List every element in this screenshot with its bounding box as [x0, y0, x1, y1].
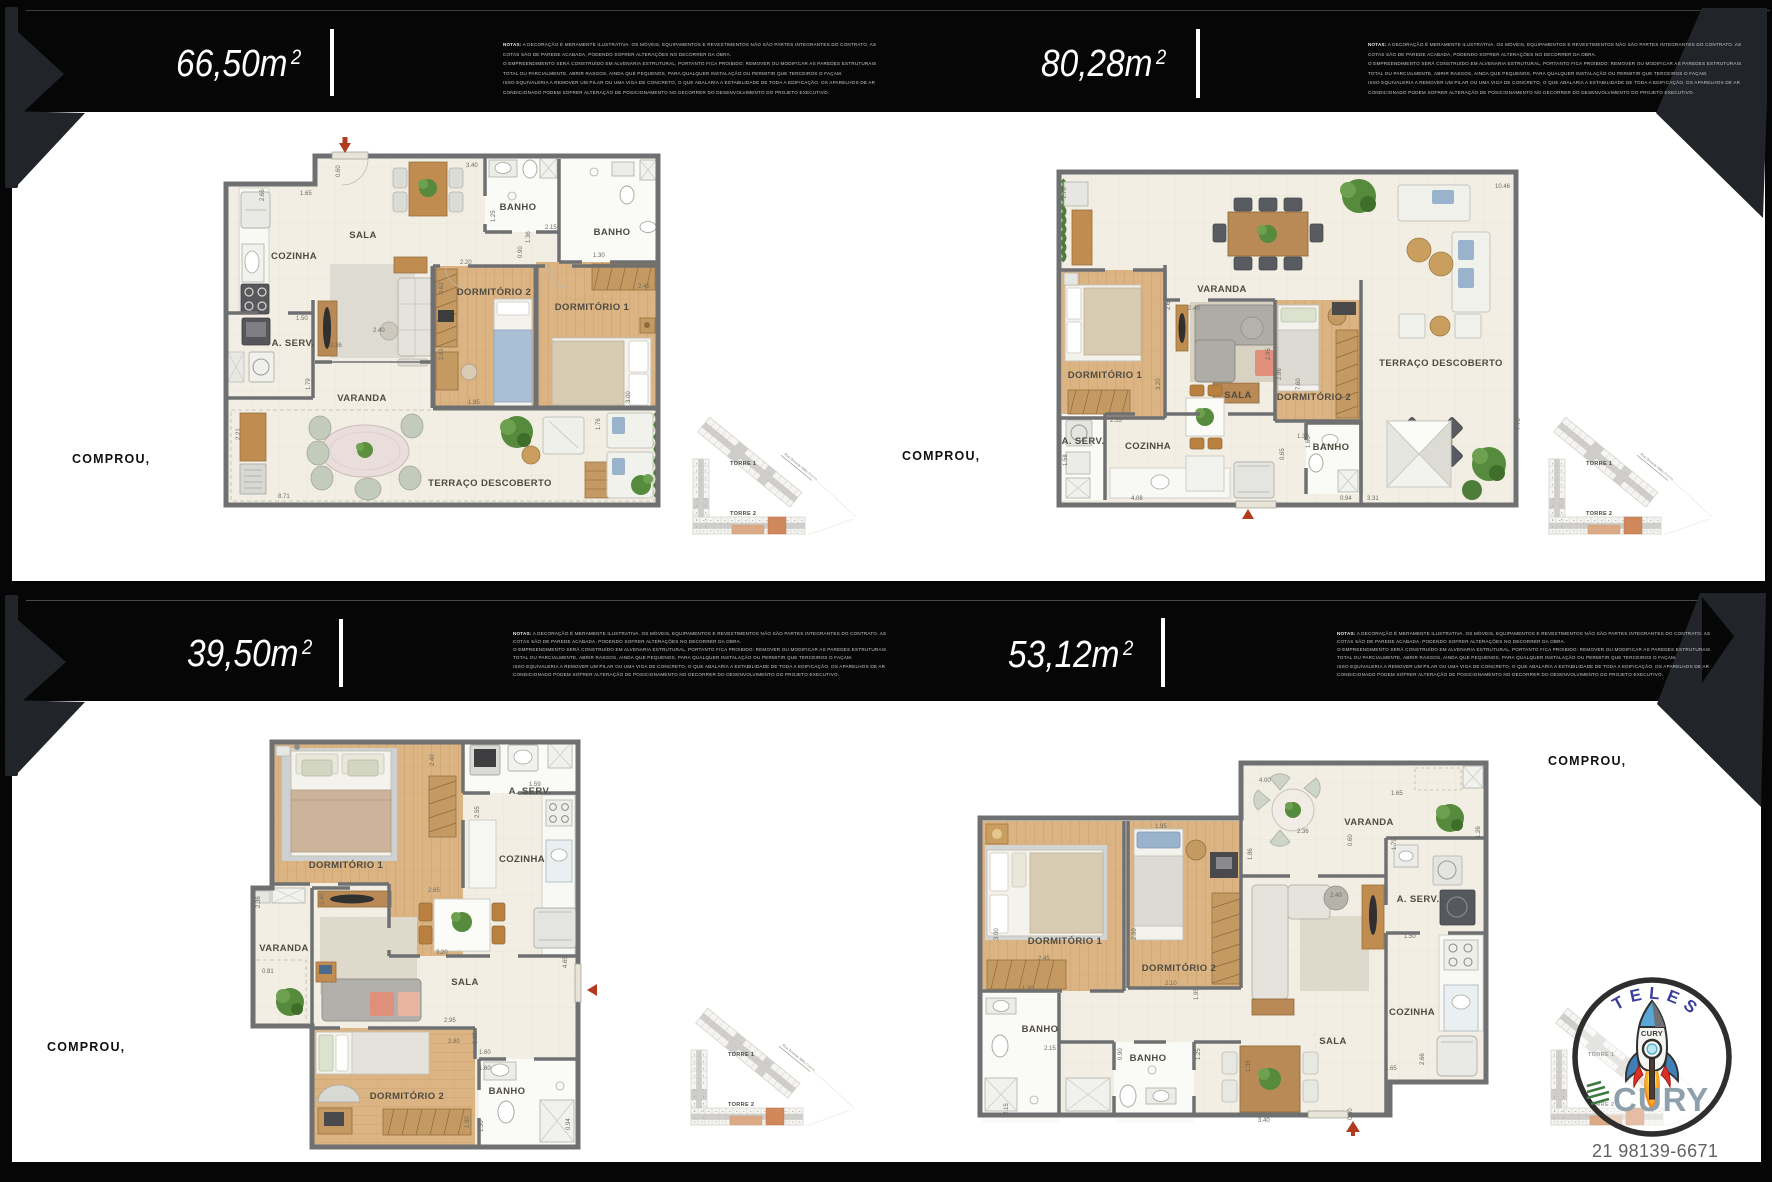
svg-text:2.45: 2.45 [1038, 956, 1050, 962]
svg-text:1.30: 1.30 [1022, 986, 1034, 992]
svg-text:0.60: 0.60 [336, 165, 342, 177]
svg-text:1.60: 1.60 [479, 1066, 491, 1072]
svg-text:2.80: 2.80 [448, 1039, 460, 1045]
svg-text:1.76: 1.76 [596, 418, 602, 430]
svg-text:2.40: 2.40 [1330, 893, 1342, 899]
svg-text:1.50: 1.50 [1404, 934, 1416, 940]
svg-text:0.65: 0.65 [473, 1032, 479, 1044]
svg-text:2.15: 2.15 [1044, 1046, 1056, 1052]
svg-text:2.86: 2.86 [1277, 368, 1283, 380]
svg-text:1.79: 1.79 [306, 378, 312, 390]
svg-text:1.65: 1.65 [300, 191, 312, 197]
svg-text:0.81: 0.81 [262, 969, 274, 975]
svg-text:DORMITÓRIO 2: DORMITÓRIO 2 [457, 286, 531, 298]
svg-text:DORMITÓRIO 1: DORMITÓRIO 1 [309, 859, 384, 871]
svg-text:COZINHA: COZINHA [1389, 1007, 1435, 1018]
svg-text:DORMITÓRIO 2: DORMITÓRIO 2 [1277, 391, 1351, 403]
svg-text:DORMITÓRIO 1: DORMITÓRIO 1 [1028, 935, 1103, 947]
svg-text:2.15: 2.15 [545, 225, 557, 231]
svg-text:1.30: 1.30 [479, 1120, 485, 1132]
svg-text:4.08: 4.08 [1131, 496, 1143, 502]
svg-text:3.40: 3.40 [1258, 1118, 1270, 1124]
svg-text:0.90: 0.90 [1118, 1048, 1124, 1060]
svg-text:1.25: 1.25 [491, 210, 497, 222]
svg-text:COZINHA: COZINHA [271, 251, 317, 262]
svg-text:SALA: SALA [1224, 390, 1251, 401]
svg-text:BANHO: BANHO [500, 202, 537, 213]
svg-text:0.90: 0.90 [518, 246, 524, 258]
svg-text:1.36: 1.36 [526, 231, 532, 243]
svg-text:TERRAÇO DESCOBERTO: TERRAÇO DESCOBERTO [428, 478, 552, 489]
svg-text:1.95: 1.95 [468, 400, 480, 406]
svg-text:BANHO: BANHO [1130, 1053, 1167, 1064]
svg-text:2.95: 2.95 [1266, 348, 1272, 360]
svg-text:BANHO: BANHO [1022, 1024, 1059, 1035]
svg-text:2.55: 2.55 [475, 806, 481, 818]
svg-text:2.65: 2.65 [428, 888, 440, 894]
svg-text:SALA: SALA [1319, 1036, 1346, 1047]
svg-text:0.60: 0.60 [1348, 1108, 1354, 1120]
svg-text:3.40: 3.40 [466, 163, 478, 169]
svg-text:CURY: CURY [1641, 1029, 1663, 1038]
svg-text:4.00: 4.00 [1259, 778, 1271, 784]
svg-text:2.10: 2.10 [1165, 981, 1177, 987]
svg-text:1.86: 1.86 [1248, 848, 1254, 860]
svg-text:1.79: 1.79 [1392, 838, 1398, 850]
svg-text:2.95: 2.95 [444, 1018, 456, 1024]
svg-text:1.90: 1.90 [465, 1116, 471, 1128]
svg-text:3.20: 3.20 [436, 950, 448, 956]
svg-text:1.25: 1.25 [1196, 1048, 1202, 1060]
svg-text:2.40: 2.40 [373, 328, 385, 334]
svg-text:2.45: 2.45 [638, 284, 650, 290]
svg-text:2.15: 2.15 [1004, 1103, 1010, 1115]
svg-text:1.60: 1.60 [1306, 436, 1312, 448]
svg-text:A. SERV.: A. SERV. [1397, 894, 1440, 905]
svg-text:2.40: 2.40 [320, 893, 326, 905]
svg-text:1.35: 1.35 [1246, 1060, 1252, 1072]
svg-text:A. SERV.: A. SERV. [272, 338, 315, 349]
svg-text:0.65: 0.65 [1280, 448, 1286, 460]
svg-text:3.31: 3.31 [1367, 496, 1379, 502]
svg-text:1.26: 1.26 [1476, 826, 1482, 838]
svg-text:1.59: 1.59 [529, 782, 541, 788]
svg-text:0.94: 0.94 [1340, 496, 1352, 502]
svg-text:COZINHA: COZINHA [499, 854, 545, 865]
svg-text:COZINHA: COZINHA [1125, 441, 1171, 452]
svg-text:CURY: CURY [1613, 1081, 1709, 1118]
svg-text:10.46: 10.46 [1495, 184, 1511, 190]
svg-text:0.94: 0.94 [566, 1118, 572, 1130]
svg-text:3.00: 3.00 [626, 391, 632, 403]
svg-text:VARANDA: VARANDA [1344, 817, 1394, 828]
svg-text:1.95: 1.95 [1194, 988, 1200, 1000]
svg-text:BANHO: BANHO [1313, 442, 1350, 453]
svg-text:1.58: 1.58 [1063, 454, 1069, 466]
svg-text:4.65: 4.65 [563, 956, 569, 968]
svg-text:7.78: 7.78 [1516, 418, 1522, 430]
svg-text:TERRAÇO DESCOBERTO: TERRAÇO DESCOBERTO [1379, 358, 1503, 369]
svg-text:2.55: 2.55 [1110, 418, 1122, 424]
svg-text:2.90: 2.90 [1132, 928, 1138, 940]
svg-text:3.20: 3.20 [1156, 378, 1162, 390]
svg-text:2.36: 2.36 [256, 896, 262, 908]
svg-text:8.71: 8.71 [278, 494, 290, 500]
svg-text:0.62: 0.62 [439, 282, 445, 294]
svg-text:VARANDA: VARANDA [1197, 284, 1247, 295]
svg-text:2.20: 2.20 [460, 260, 472, 266]
svg-text:DORMITÓRIO 2: DORMITÓRIO 2 [1142, 962, 1216, 974]
svg-text:3.00: 3.00 [994, 928, 1000, 940]
svg-text:1.30: 1.30 [593, 253, 605, 259]
svg-text:1.65: 1.65 [1391, 791, 1403, 797]
svg-text:2.40: 2.40 [1188, 306, 1200, 312]
svg-text:1.65: 1.65 [1385, 1066, 1397, 1072]
svg-text:2.65: 2.65 [1166, 298, 1172, 310]
svg-text:2.81: 2.81 [439, 348, 445, 360]
svg-text:DORMITÓRIO 1: DORMITÓRIO 1 [1068, 369, 1143, 381]
svg-text:VARANDA: VARANDA [259, 943, 309, 954]
svg-text:1.60: 1.60 [479, 1050, 491, 1056]
svg-text:DORMITÓRIO 2: DORMITÓRIO 2 [370, 1090, 444, 1102]
svg-text:1.95: 1.95 [1155, 824, 1167, 830]
svg-text:1.50: 1.50 [296, 316, 308, 322]
svg-text:BANHO: BANHO [489, 1086, 526, 1097]
svg-text:2.36: 2.36 [330, 343, 342, 349]
svg-text:2.66: 2.66 [1420, 1053, 1426, 1065]
svg-text:BANHO: BANHO [594, 227, 631, 238]
svg-text:2.21: 2.21 [236, 428, 242, 440]
svg-text:SALA: SALA [451, 977, 478, 988]
svg-text:2.36: 2.36 [1297, 829, 1309, 835]
svg-text:7.60: 7.60 [1296, 378, 1302, 390]
svg-text:SALA: SALA [349, 230, 376, 241]
svg-text:0.60: 0.60 [1348, 834, 1354, 846]
svg-text:DORMITÓRIO 1: DORMITÓRIO 1 [555, 301, 630, 313]
svg-text:2.40: 2.40 [430, 754, 436, 766]
svg-text:VARANDA: VARANDA [337, 393, 387, 404]
svg-text:A. SERV.: A. SERV. [1062, 436, 1105, 447]
svg-text:1.76: 1.76 [1062, 187, 1068, 199]
svg-text:2.66: 2.66 [260, 189, 266, 201]
